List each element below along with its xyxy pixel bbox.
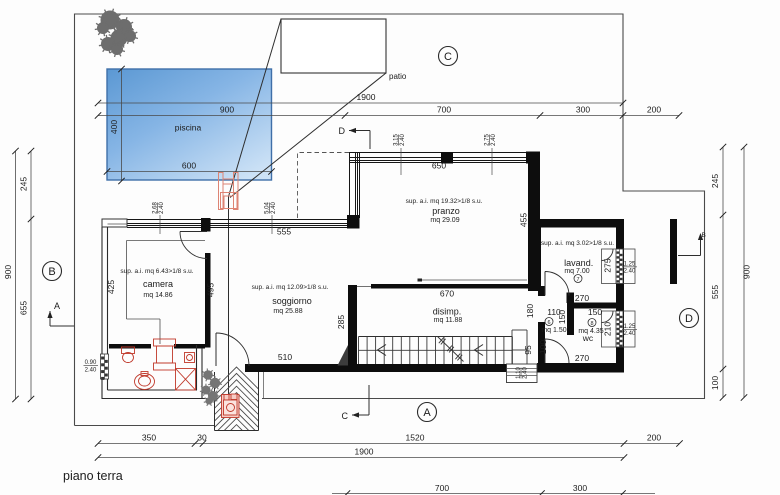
svg-text:200: 200 <box>647 433 661 443</box>
svg-text:B: B <box>48 266 55 278</box>
svg-text:mq 29.09: mq 29.09 <box>430 217 459 224</box>
svg-text:wc: wc <box>582 333 594 343</box>
svg-text:disimp.: disimp. <box>433 307 462 317</box>
svg-text:mq 25.88: mq 25.88 <box>273 308 302 315</box>
svg-text:sup. a.i. mq 19.32>1/8 s.u.: sup. a.i. mq 19.32>1/8 s.u. <box>406 198 483 205</box>
svg-text:510: 510 <box>278 352 292 362</box>
svg-text:D: D <box>339 126 346 136</box>
svg-text:2.40: 2.40 <box>491 134 497 146</box>
svg-text:300: 300 <box>576 105 590 115</box>
svg-text:piano terra: piano terra <box>63 469 123 483</box>
svg-text:A: A <box>54 301 60 311</box>
svg-text:150: 150 <box>557 310 567 324</box>
svg-text:mq 11.88: mq 11.88 <box>434 317 463 324</box>
svg-text:2.40: 2.40 <box>85 368 97 374</box>
svg-text:C: C <box>444 51 452 63</box>
svg-text:245: 245 <box>19 177 29 191</box>
svg-text:100: 100 <box>538 340 548 354</box>
svg-text:210: 210 <box>603 322 613 336</box>
svg-text:2.40: 2.40 <box>624 331 636 337</box>
svg-text:700: 700 <box>437 105 451 115</box>
svg-text:7: 7 <box>576 277 579 283</box>
svg-text:555: 555 <box>277 227 291 237</box>
svg-text:mq 1.50: mq 1.50 <box>541 327 566 334</box>
svg-text:2.40: 2.40 <box>271 202 277 214</box>
svg-text:350: 350 <box>142 433 156 443</box>
svg-text:650: 650 <box>432 161 446 171</box>
svg-text:555: 555 <box>710 285 720 299</box>
svg-text:270: 270 <box>575 293 589 303</box>
svg-text:1900: 1900 <box>355 447 374 457</box>
svg-text:455: 455 <box>519 213 529 227</box>
svg-text:285: 285 <box>336 315 346 329</box>
svg-text:camera: camera <box>143 279 173 289</box>
svg-text:2.40: 2.40 <box>159 202 165 214</box>
svg-text:655: 655 <box>19 301 29 315</box>
svg-text:piscina: piscina <box>175 123 202 133</box>
svg-text:245: 245 <box>710 174 720 188</box>
svg-text:D: D <box>685 313 693 325</box>
svg-text:pranzo: pranzo <box>432 206 460 216</box>
svg-text:900: 900 <box>742 265 752 279</box>
svg-text:300: 300 <box>573 483 587 493</box>
svg-text:lavand.: lavand. <box>564 258 593 268</box>
svg-text:patio: patio <box>389 72 407 81</box>
svg-text:sup. a.i. mq 3.02>1/8 s.u.: sup. a.i. mq 3.02>1/8 s.u. <box>541 240 614 247</box>
svg-text:sup. a.i. mq 6.43>1/8 s.u.: sup. a.i. mq 6.43>1/8 s.u. <box>120 268 193 275</box>
svg-text:95: 95 <box>523 345 533 355</box>
svg-text:180: 180 <box>525 304 535 318</box>
svg-text:495: 495 <box>206 283 216 297</box>
svg-text:670: 670 <box>440 289 454 299</box>
svg-text:mq 7.00: mq 7.00 <box>564 268 589 275</box>
svg-text:A: A <box>423 407 431 419</box>
svg-text:270: 270 <box>575 353 589 363</box>
svg-text:400: 400 <box>109 120 119 134</box>
svg-text:900: 900 <box>220 105 234 115</box>
svg-text:C: C <box>342 411 349 421</box>
svg-text:100: 100 <box>710 376 720 390</box>
svg-text:275: 275 <box>603 258 613 272</box>
svg-text:mq 14.86: mq 14.86 <box>143 292 172 299</box>
svg-text:6: 6 <box>547 320 550 326</box>
svg-text:8: 8 <box>590 321 593 327</box>
svg-text:soggiorno: soggiorno <box>272 296 312 306</box>
svg-text:1900: 1900 <box>357 92 376 102</box>
svg-text:900: 900 <box>3 265 13 279</box>
svg-text:2.40: 2.40 <box>523 367 529 379</box>
svg-text:200: 200 <box>647 105 661 115</box>
svg-text:600: 600 <box>182 161 196 171</box>
svg-text:700: 700 <box>435 483 449 493</box>
svg-text:30: 30 <box>197 433 207 443</box>
svg-text:150: 150 <box>588 307 602 317</box>
svg-text:425: 425 <box>106 280 116 294</box>
svg-text:1520: 1520 <box>406 433 425 443</box>
svg-text:0.90: 0.90 <box>85 360 97 366</box>
svg-text:sup. a.i. mq 12.09>1/8 s.u.: sup. a.i. mq 12.09>1/8 s.u. <box>252 284 329 291</box>
svg-text:2.40: 2.40 <box>400 134 406 146</box>
svg-text:2.40: 2.40 <box>624 268 636 274</box>
